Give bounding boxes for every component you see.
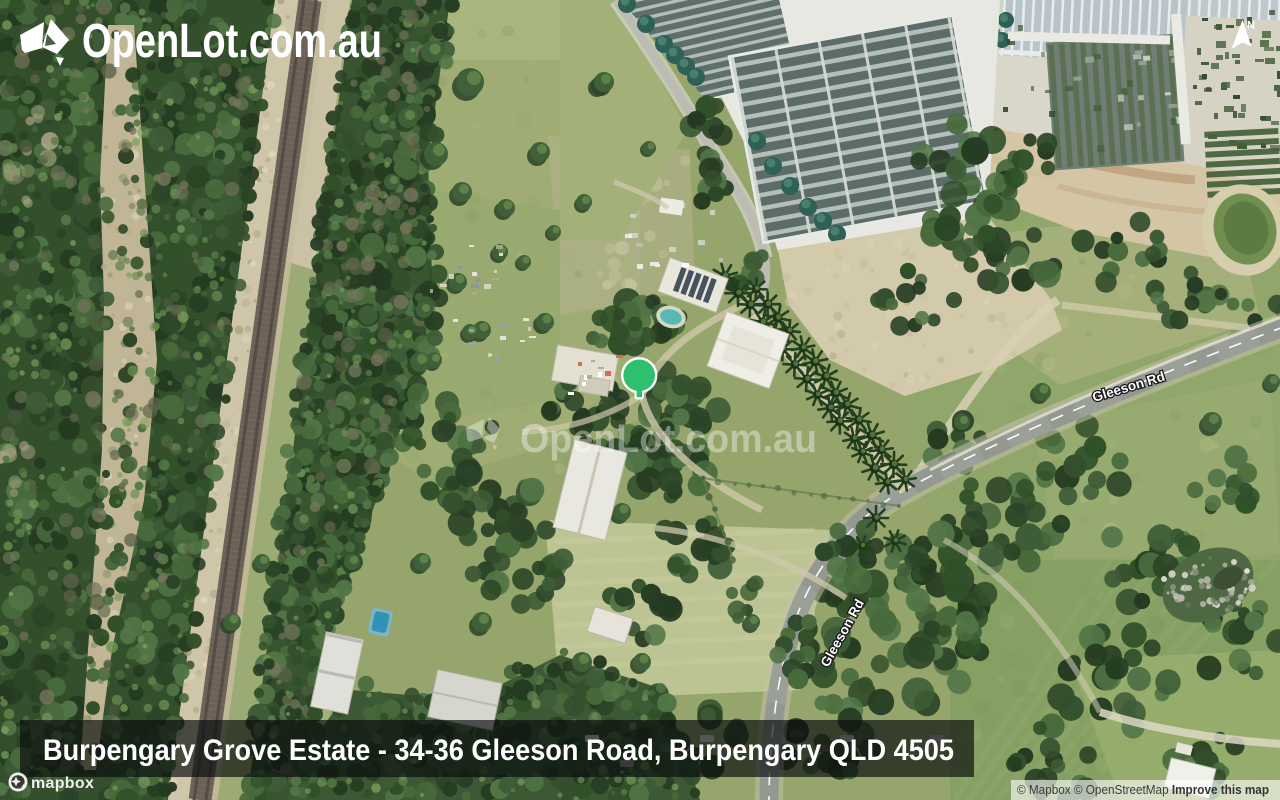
- svg-text:Burpengary Grove Estate - 34-3: Burpengary Grove Estate - 34-36 Gleeson …: [43, 734, 954, 767]
- svg-text:OpenLot.com.au: OpenLot.com.au: [520, 417, 817, 461]
- svg-text:mapbox: mapbox: [31, 775, 94, 792]
- svg-text:OpenLot.com.au: OpenLot.com.au: [82, 15, 382, 68]
- svg-text:© Mapbox © OpenStreetMap Impro: © Mapbox © OpenStreetMap Improve this ma…: [1017, 783, 1269, 797]
- svg-text:N: N: [1247, 20, 1255, 32]
